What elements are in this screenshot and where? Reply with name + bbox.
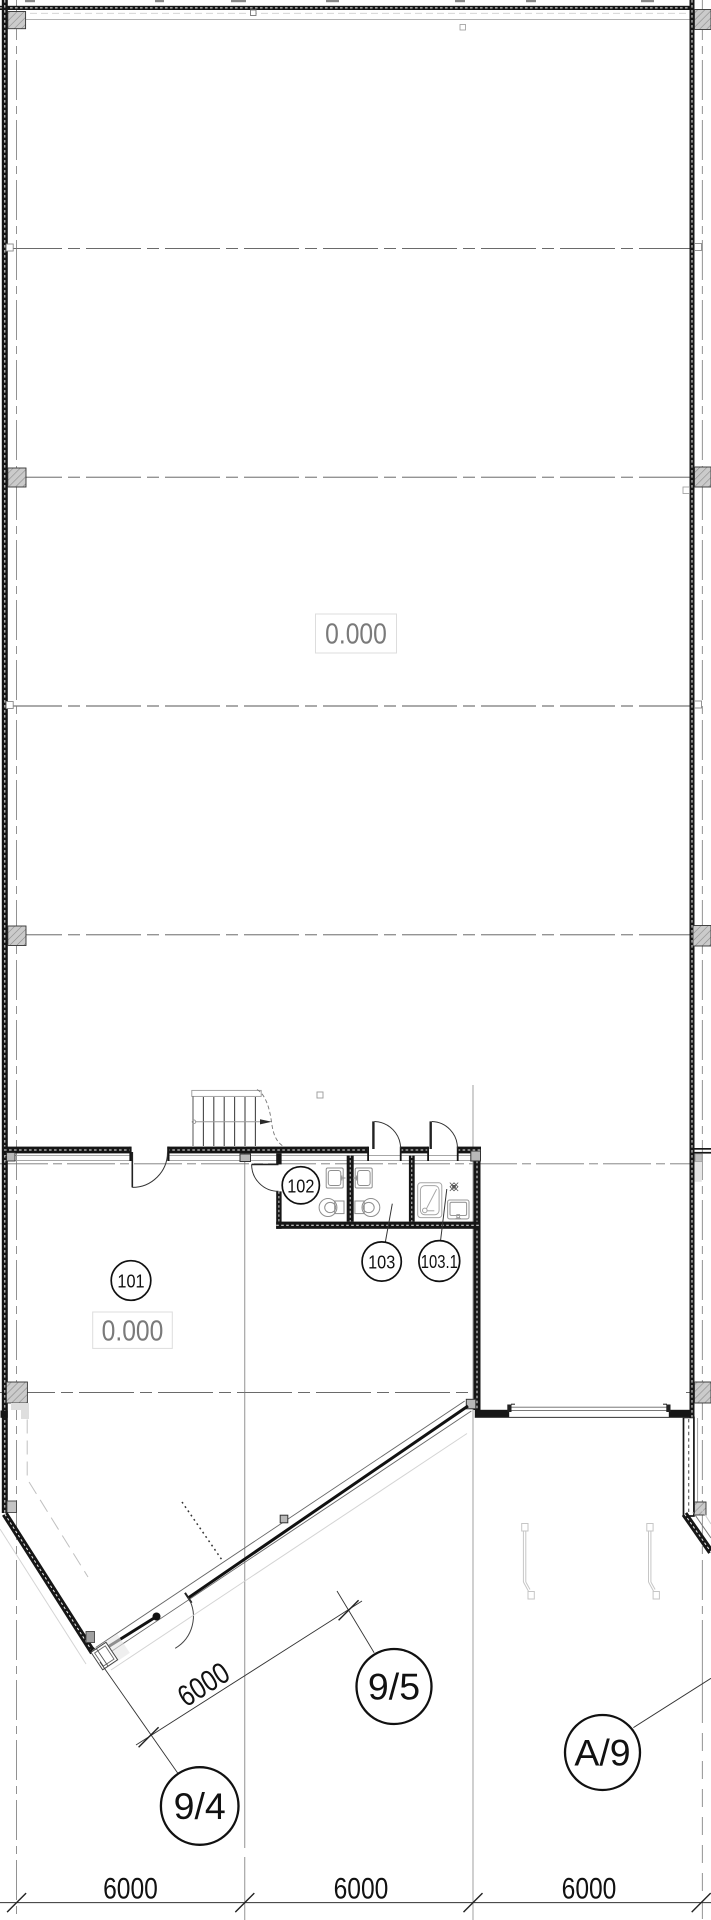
svg-text:9/4: 9/4 <box>174 1785 226 1827</box>
svg-text:6000: 6000 <box>334 1871 389 1905</box>
svg-text:102: 102 <box>287 1175 314 1196</box>
svg-text:0.000: 0.000 <box>325 618 387 650</box>
svg-text:6000: 6000 <box>103 1871 158 1905</box>
svg-text:9/5: 9/5 <box>368 1666 420 1708</box>
svg-text:0.000: 0.000 <box>102 1315 164 1347</box>
svg-text:6000: 6000 <box>562 1871 617 1905</box>
svg-text:A/9: A/9 <box>574 1732 630 1774</box>
svg-text:103: 103 <box>368 1252 395 1273</box>
svg-text:101: 101 <box>117 1271 144 1292</box>
svg-text:103.1: 103.1 <box>421 1251 458 1272</box>
